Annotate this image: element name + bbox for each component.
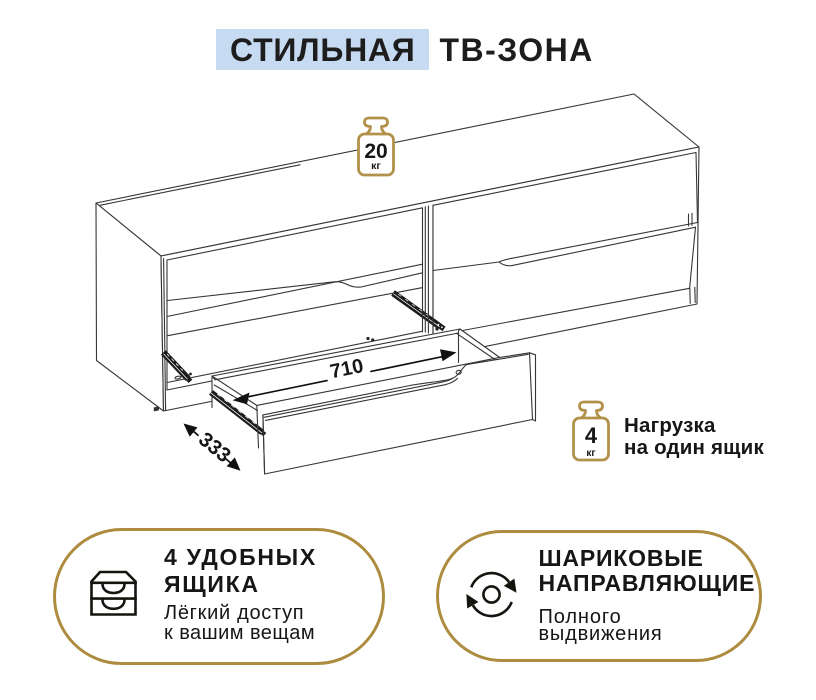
svg-text:кг: кг (371, 160, 381, 172)
svg-text:4: 4 (585, 423, 598, 448)
svg-text:кг: кг (586, 448, 595, 459)
